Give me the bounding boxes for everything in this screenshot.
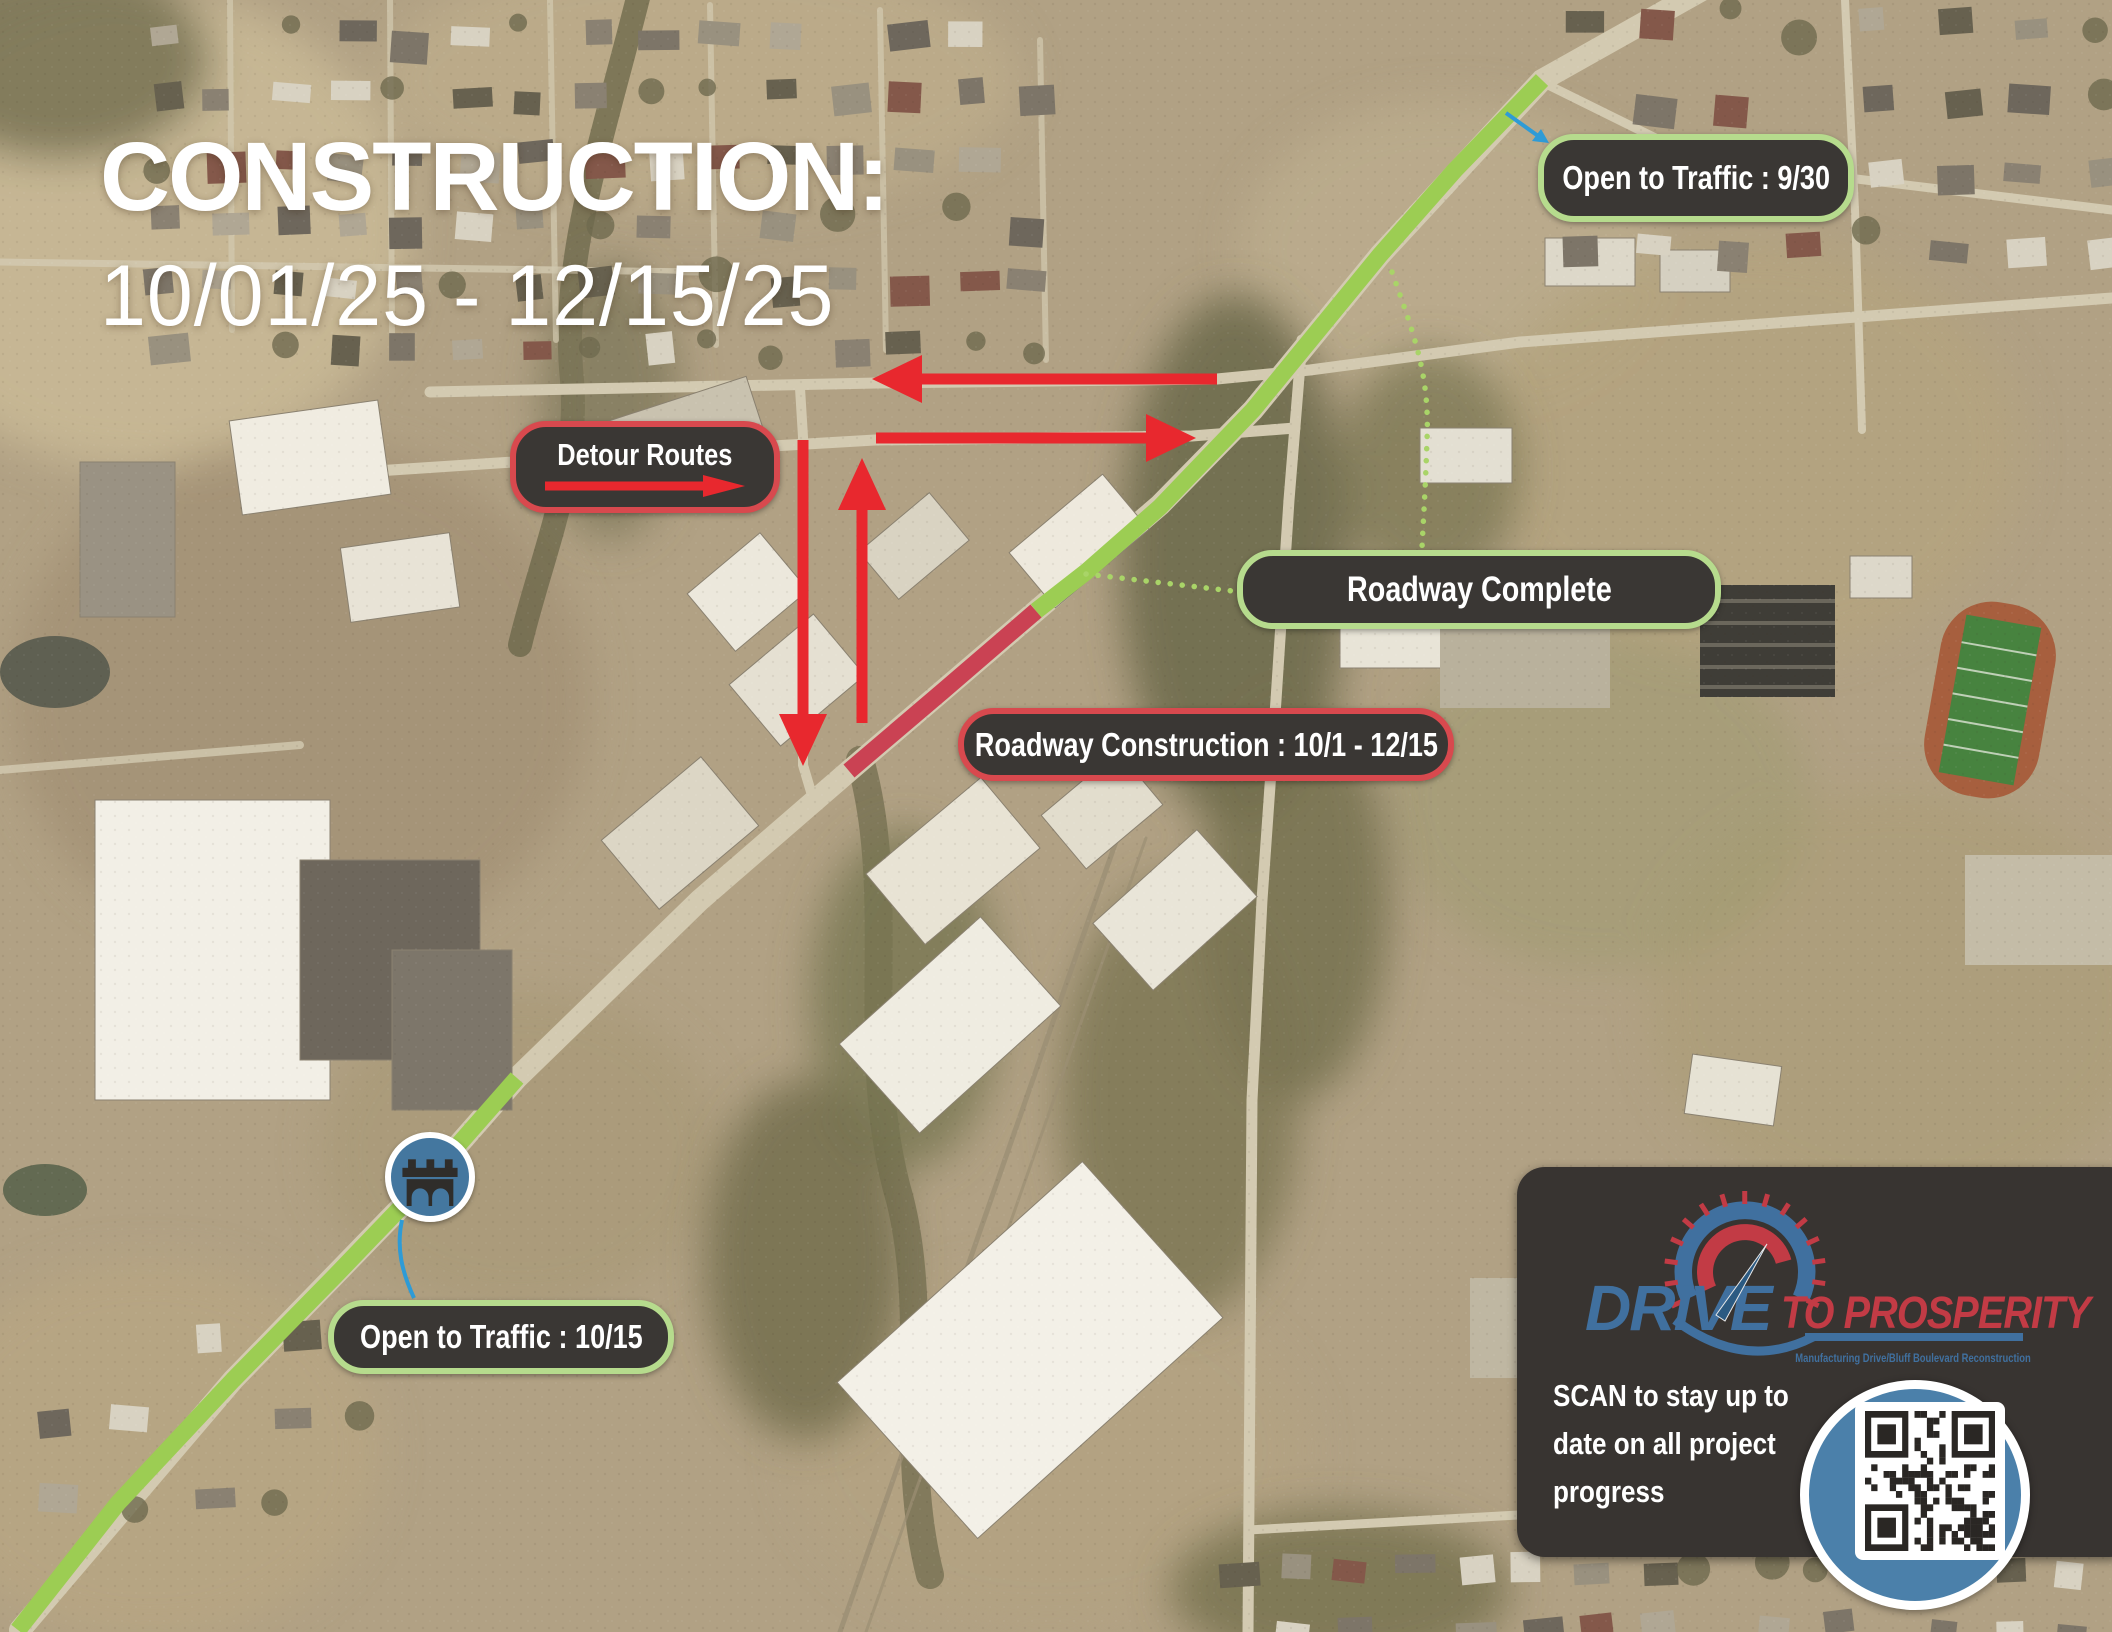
leader-dotted-roadway-complete [1086,574,1250,593]
project-info-panel: DRIVE TO PROSPERITY Manufacturing Drive/… [1517,1167,2112,1557]
leader-open-930 [1506,113,1549,143]
bridge-icon [385,1132,475,1222]
label-detour-routes: Detour Routes [510,421,780,513]
title-dates: 10/01/25 - 12/15/25 [100,253,856,339]
leader-open-1015 [400,1220,414,1298]
construction-map-flyer: CONSTRUCTION: 10/01/25 - 12/15/25 Open t… [0,0,2112,1632]
leader-dotted-roadway-complete-vertical [1392,272,1427,548]
detour-arrow-west [872,355,1217,403]
detour-arrow-south [779,440,827,766]
qr-code-badge [1800,1380,2030,1610]
route-open-north [1036,80,1542,611]
logo-tagline: Manufacturing Drive/Bluff Boulevard Reco… [1795,1352,2030,1365]
drive-to-prosperity-logo: DRIVE TO PROSPERITY Manufacturing Drive/… [1535,1169,2095,1369]
qr-code [1855,1402,2005,1560]
bridge-glyph [397,1148,463,1206]
detour-arrow-north [838,458,886,723]
scan-instructions: SCAN to stay up to date on all project p… [1553,1372,1789,1516]
title-construction: CONSTRUCTION: [100,128,888,225]
label-open-to-traffic-1015: Open to Traffic : 10/15 [328,1300,674,1374]
label-open-to-traffic-930: Open to Traffic : 9/30 [1538,134,1854,222]
detour-arrow-east [876,414,1196,462]
logo-drive: DRIVE [1585,1272,1775,1344]
page-title: CONSTRUCTION: 10/01/25 - 12/15/25 [100,128,888,339]
label-roadway-complete: Roadway Complete [1237,550,1721,629]
label-roadway-construction: Roadway Construction : 10/1 - 12/15 [958,708,1454,781]
logo-to-prosperity: TO PROSPERITY [1781,1288,2094,1338]
detour-arrow-icon [539,473,751,499]
